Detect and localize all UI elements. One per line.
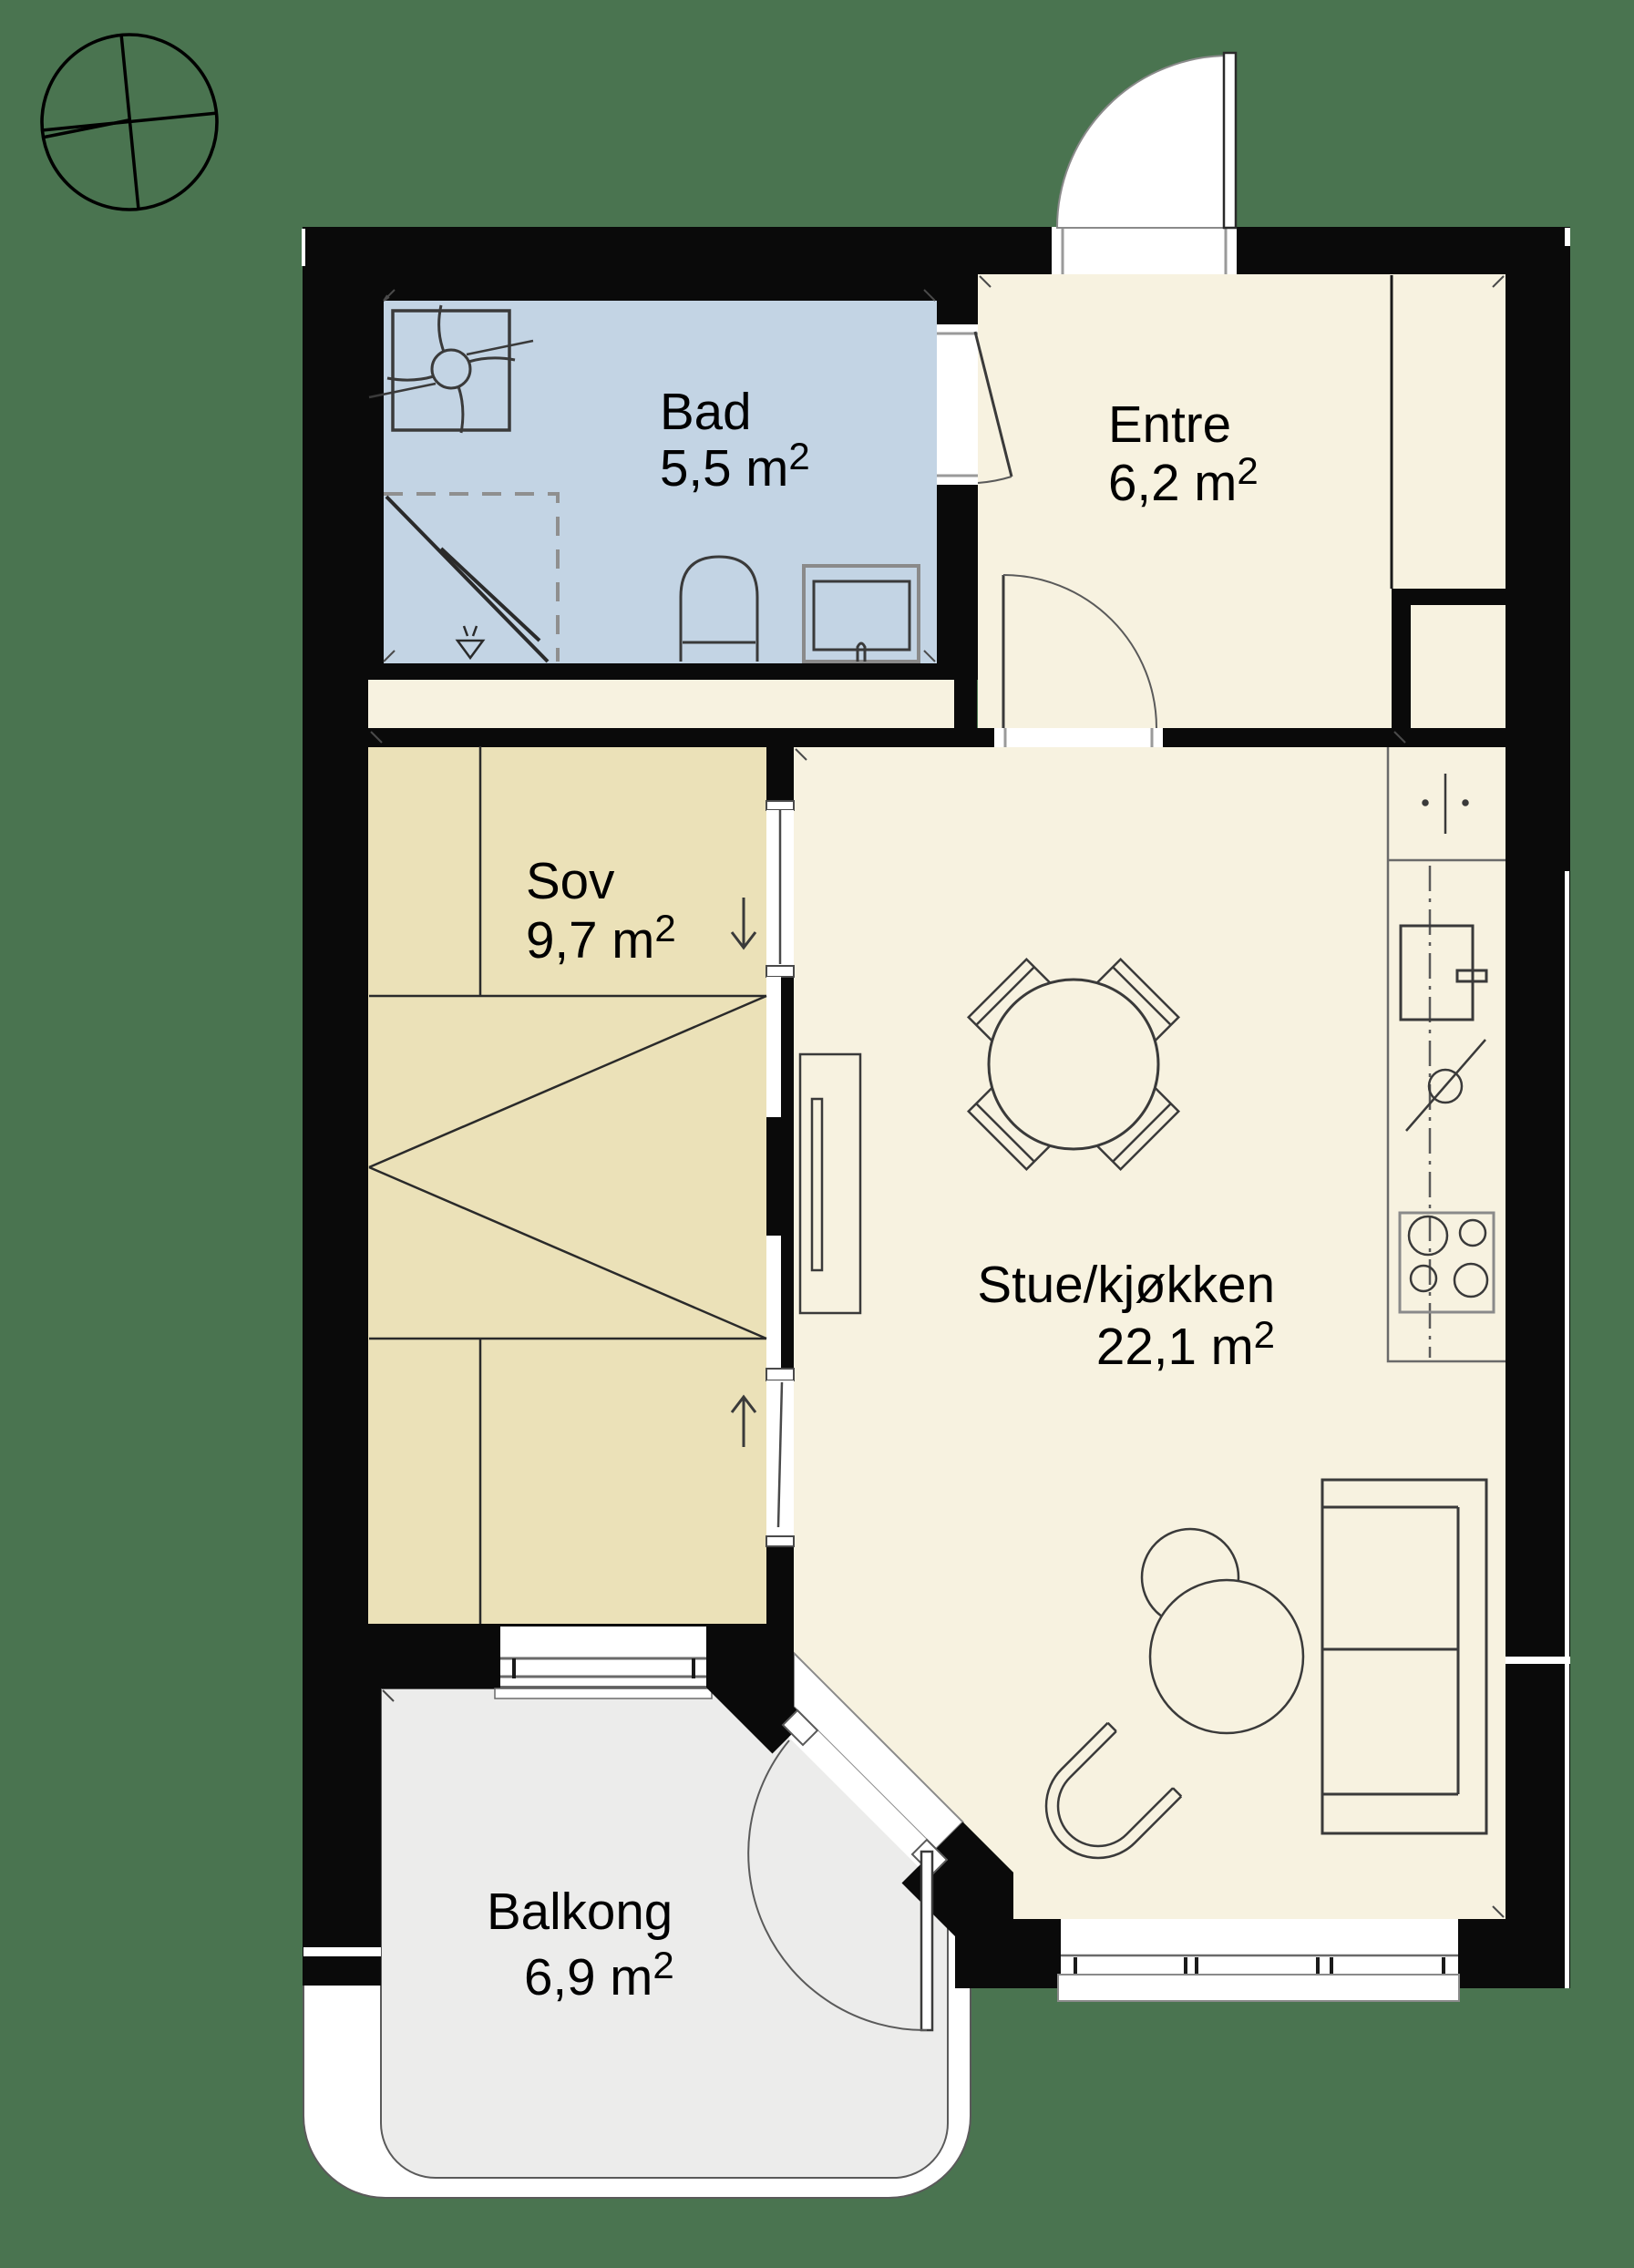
svg-text:Entre: Entre: [1108, 395, 1231, 453]
svg-text:22,1 m2: 22,1 m2: [1096, 1313, 1275, 1375]
svg-text:6,2 m2: 6,2 m2: [1108, 449, 1259, 511]
svg-text:6,9 m2: 6,9 m2: [524, 1944, 674, 2006]
svg-text:Bad: Bad: [660, 383, 752, 440]
svg-text:Balkong: Balkong: [487, 1883, 673, 1940]
svg-text:Sov: Sov: [526, 852, 615, 909]
svg-text:Stue/kjøkken: Stue/kjøkken: [977, 1256, 1275, 1313]
svg-text:9,7 m2: 9,7 m2: [526, 907, 676, 969]
svg-text:5,5 m2: 5,5 m2: [660, 435, 810, 497]
